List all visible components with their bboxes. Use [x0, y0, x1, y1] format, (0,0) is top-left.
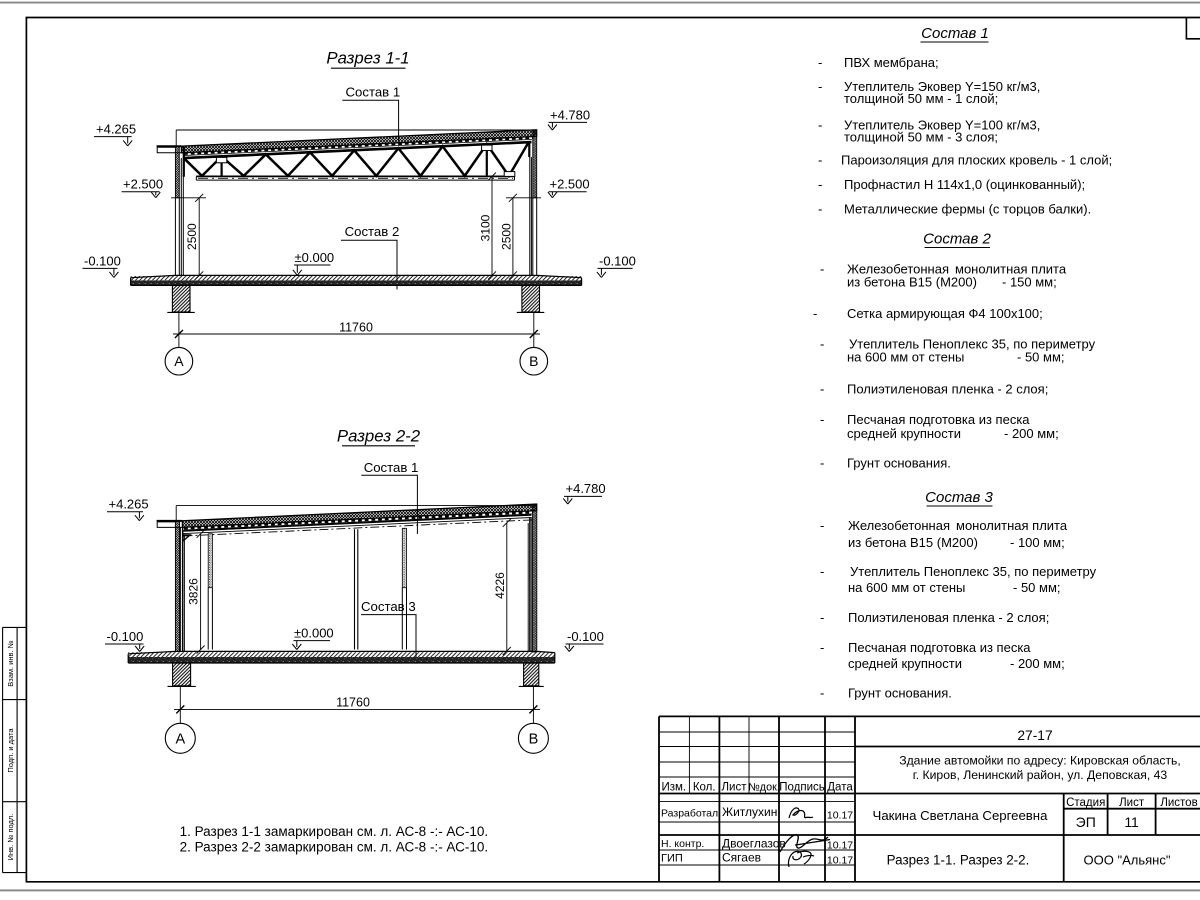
svg-text:10.17: 10.17	[827, 855, 853, 867]
svg-text:- 50 мм;: - 50 мм;	[1017, 350, 1065, 365]
svg-text:Состав 1: Состав 1	[921, 25, 989, 42]
svg-text:11: 11	[1124, 814, 1139, 830]
svg-text:Дата: Дата	[827, 782, 853, 794]
svg-text:+4.265: +4.265	[96, 122, 136, 137]
svg-text:Подп. и дата: Подп. и дата	[6, 728, 15, 773]
svg-text:Житлухин: Житлухин	[722, 805, 777, 819]
svg-text:Полиэтиленовая пленка - 2 слоя: Полиэтиленовая пленка - 2 слоя;	[847, 382, 1048, 397]
svg-text:Состав 2: Состав 2	[345, 224, 400, 239]
svg-text:Состав 1: Состав 1	[364, 460, 419, 475]
svg-text:Взам. инв. №: Взам. инв. №	[6, 640, 15, 686]
svg-text:Грунт основания.: Грунт основания.	[848, 686, 952, 701]
svg-text:-0.100: -0.100	[84, 253, 121, 268]
svg-text:-: -	[818, 118, 822, 133]
svg-text:Металлические фермы (с торцов: Металлические фермы (с торцов балки).	[844, 202, 1091, 217]
svg-text:Разрез 2-2: Разрез 2-2	[337, 427, 421, 446]
svg-text:ПВХ мембрана;: ПВХ мембрана;	[844, 55, 939, 70]
svg-text:+2.500: +2.500	[123, 177, 163, 192]
svg-text:-0.100: -0.100	[567, 629, 604, 644]
svg-text:из бетона В15 (М200): из бетона В15 (М200)	[847, 275, 977, 290]
svg-text:Утеплитель Пеноплекс 35, по пе: Утеплитель Пеноплекс 35, по периметру	[850, 564, 1097, 579]
svg-text:толщиной 50 мм - 1 слой;: толщиной 50 мм - 1 слой;	[844, 91, 998, 106]
svg-text:11760: 11760	[339, 321, 373, 335]
svg-text:А: А	[174, 353, 184, 369]
svg-text:Чакина Светлана Сергеевна: Чакина Светлана Сергеевна	[873, 808, 1049, 823]
svg-text:+4.265: +4.265	[109, 497, 149, 512]
svg-text:г. Киров, Ленинский район, ул.: г. Киров, Ленинский район, ул. Деповская…	[913, 768, 1168, 782]
svg-text:Лист: Лист	[722, 782, 748, 794]
svg-text:средней крупности: средней крупности	[848, 656, 962, 671]
svg-text:на 600 мм от стены: на 600 мм от стены	[848, 580, 965, 595]
svg-text:Инв. № подл.: Инв. № подл.	[6, 814, 15, 861]
svg-text:Листов: Листов	[1160, 797, 1197, 809]
svg-text:№док.: №док.	[748, 782, 780, 794]
svg-text:ООО "Альянс": ООО "Альянс"	[1084, 853, 1171, 868]
svg-text:11760: 11760	[336, 696, 370, 710]
svg-text:-: -	[818, 202, 822, 217]
svg-text:Н. контр.: Н. контр.	[661, 838, 704, 850]
svg-text:-: -	[820, 518, 824, 533]
svg-text:Состав 3: Состав 3	[925, 489, 993, 506]
svg-text:монолитная плита: монолитная плита	[956, 518, 1068, 533]
svg-text:-: -	[818, 153, 822, 168]
svg-text:±0.000: ±0.000	[295, 250, 335, 265]
svg-text:-: -	[820, 456, 824, 471]
svg-text:Состав 1: Состав 1	[346, 85, 401, 100]
svg-text:2500: 2500	[499, 223, 513, 250]
svg-text:1. Разрез 1-1 замаркирован см.: 1. Разрез 1-1 замаркирован см. л. АС-8 -…	[180, 824, 489, 839]
svg-text:- 200 мм;: - 200 мм;	[1010, 656, 1065, 671]
svg-text:-: -	[820, 564, 824, 579]
svg-text:средней крупности: средней крупности	[847, 426, 961, 441]
svg-text:Изм.: Изм.	[661, 782, 686, 794]
svg-text:Состав 3: Состав 3	[361, 599, 416, 614]
svg-text:Сетка армирующая Ф4 100х100;: Сетка армирующая Ф4 100х100;	[847, 306, 1043, 321]
svg-text:Двоеглазов: Двоеглазов	[722, 837, 786, 851]
svg-text:-: -	[818, 177, 822, 192]
svg-text:Профнастил Н 114х1,0 (оцинкова: Профнастил Н 114х1,0 (оцинкованный);	[844, 177, 1085, 192]
svg-text:ГИП: ГИП	[661, 853, 683, 865]
svg-text:Разрез 1-1: Разрез 1-1	[326, 49, 409, 68]
svg-text:+2.500: +2.500	[550, 177, 590, 192]
svg-text:Здание автомойки по адресу: Ки: Здание автомойки по адресу: Кировская об…	[899, 754, 1181, 768]
svg-text:Сягаев: Сягаев	[722, 851, 761, 865]
svg-text:Песчаная подготовка из песка: Песчаная подготовка из песка	[848, 640, 1031, 655]
svg-text:-: -	[818, 79, 822, 94]
svg-text:-: -	[820, 640, 824, 655]
svg-text:из бетона В15 (М200): из бетона В15 (М200)	[848, 535, 978, 550]
svg-text:А: А	[175, 732, 185, 748]
svg-text:Полиэтиленовая пленка - 2 слоя: Полиэтиленовая пленка - 2 слоя;	[848, 610, 1049, 625]
svg-text:±0.000: ±0.000	[294, 626, 334, 641]
svg-text:-0.100: -0.100	[599, 253, 636, 268]
svg-text:- 100 мм;: - 100 мм;	[1010, 535, 1065, 550]
svg-text:-: -	[820, 337, 824, 352]
svg-text:Лист: Лист	[1119, 797, 1145, 809]
svg-text:Железобетонная: Железобетонная	[848, 518, 950, 533]
svg-text:3826: 3826	[187, 578, 201, 605]
svg-text:В: В	[529, 353, 538, 369]
svg-text:Подпись: Подпись	[779, 782, 825, 794]
svg-text:+4.780: +4.780	[566, 481, 606, 496]
svg-text:Песчаная подготовка из песка: Песчаная подготовка из песка	[847, 412, 1030, 427]
svg-text:Кол.: Кол.	[693, 782, 716, 794]
svg-text:-: -	[818, 55, 822, 70]
svg-text:27-17: 27-17	[1017, 728, 1052, 743]
svg-text:3100: 3100	[478, 214, 492, 241]
svg-text:-0.100: -0.100	[107, 629, 144, 644]
svg-text:10.17: 10.17	[827, 840, 853, 852]
svg-text:+4.780: +4.780	[550, 107, 590, 122]
svg-text:Грунт основания.: Грунт основания.	[847, 456, 951, 471]
svg-text:- 200 мм;: - 200 мм;	[1004, 426, 1059, 441]
svg-text:-: -	[820, 412, 824, 427]
svg-text:на 600 мм от стены: на 600 мм от стены	[847, 350, 964, 365]
svg-text:2500: 2500	[185, 223, 199, 250]
svg-text:-: -	[820, 686, 824, 701]
svg-text:2. Разрез 2-2 замаркирован см.: 2. Разрез 2-2 замаркирован см. л. АС-8 -…	[180, 840, 489, 855]
svg-text:ЭП: ЭП	[1076, 814, 1096, 830]
svg-text:Разрез 1-1. Разрез 2-2.: Разрез 1-1. Разрез 2-2.	[887, 853, 1030, 868]
svg-text:Разработал: Разработал	[661, 808, 718, 820]
svg-text:толщиной 50 мм - 3 слоя;: толщиной 50 мм - 3 слоя;	[844, 130, 998, 145]
svg-text:- 150 мм;: - 150 мм;	[1002, 275, 1057, 290]
svg-text:-: -	[820, 610, 824, 625]
svg-text:-: -	[813, 306, 817, 321]
svg-text:-: -	[820, 382, 824, 397]
svg-text:- 50 мм;: - 50 мм;	[1013, 580, 1061, 595]
svg-text:-: -	[820, 262, 824, 277]
svg-text:Стадия: Стадия	[1066, 797, 1105, 809]
svg-text:В: В	[529, 732, 539, 748]
svg-text:Состав 2: Состав 2	[923, 231, 991, 248]
svg-text:Пароизоляция для плоских крове: Пароизоляция для плоских кровель - 1 сло…	[841, 153, 1112, 168]
svg-text:10.17: 10.17	[827, 810, 853, 822]
svg-text:4226: 4226	[493, 572, 507, 599]
